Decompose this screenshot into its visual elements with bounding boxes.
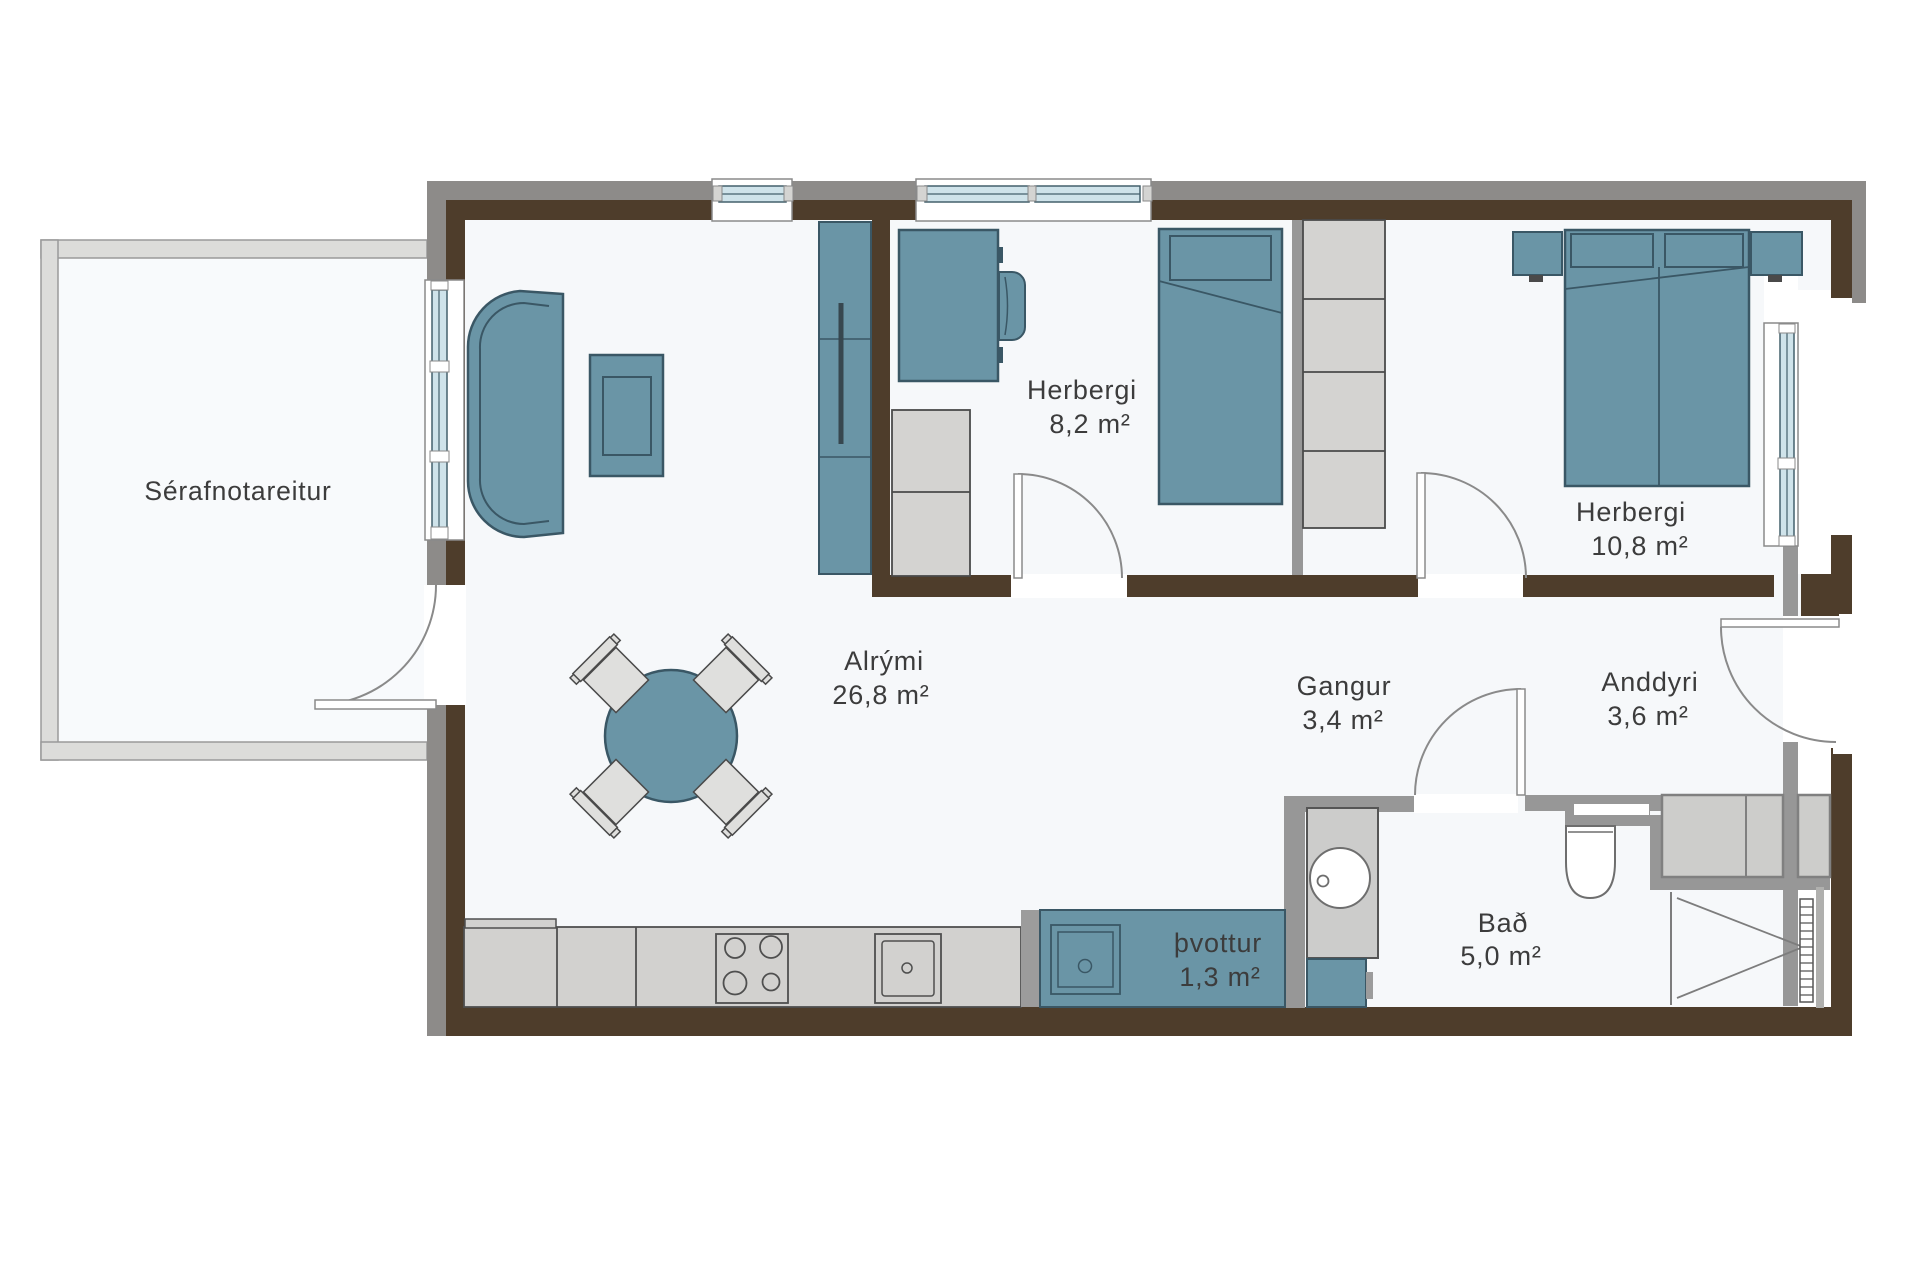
svg-text:Alrými: Alrými bbox=[844, 646, 924, 676]
svg-text:Herbergi: Herbergi bbox=[1576, 497, 1686, 527]
svg-text:Bað: Bað bbox=[1478, 908, 1528, 938]
svg-text:5,0 m²: 5,0 m² bbox=[1460, 941, 1541, 971]
svg-text:3,6 m²: 3,6 m² bbox=[1607, 701, 1688, 731]
svg-text:Gangur: Gangur bbox=[1297, 671, 1392, 701]
svg-text:8,2 m²: 8,2 m² bbox=[1049, 409, 1130, 439]
svg-text:10,8 m²: 10,8 m² bbox=[1591, 531, 1688, 561]
svg-text:26,8 m²: 26,8 m² bbox=[832, 680, 929, 710]
svg-text:Herbergi: Herbergi bbox=[1027, 375, 1137, 405]
svg-text:Anddyri: Anddyri bbox=[1601, 667, 1698, 697]
svg-text:1,3 m²: 1,3 m² bbox=[1179, 962, 1260, 992]
svg-text:þvottur: þvottur bbox=[1174, 928, 1262, 958]
svg-text:3,4 m²: 3,4 m² bbox=[1302, 705, 1383, 735]
svg-text:Sérafnotareitur: Sérafnotareitur bbox=[144, 476, 331, 506]
